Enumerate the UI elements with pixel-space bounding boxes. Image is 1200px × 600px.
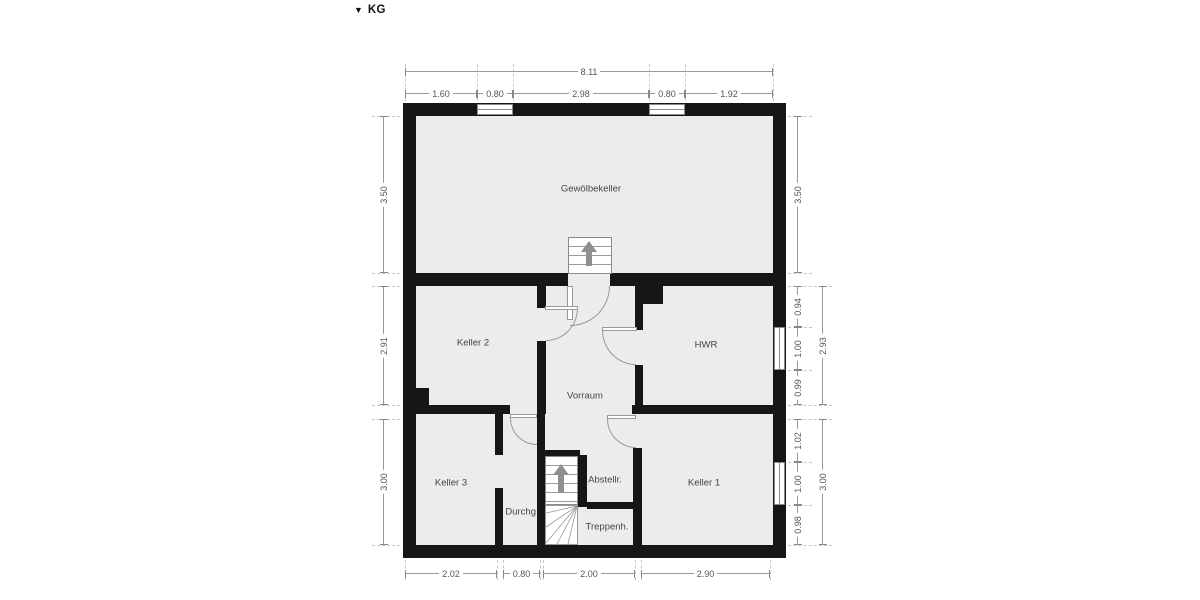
room-label-treppenhaus: Treppenh. [586, 522, 629, 533]
extension-line [788, 405, 832, 406]
door-leaf-keller1 [607, 415, 636, 419]
extension-line [372, 273, 400, 274]
dim-bottom-seg-1: 2.02 [405, 569, 497, 578]
chimney-block [640, 286, 663, 304]
stairs-up-arrow-stem [558, 475, 564, 493]
wall-durchgang-stair [537, 414, 545, 545]
dim-right-bot-1: 1.02 [793, 419, 802, 462]
stairs-winder [545, 505, 578, 545]
wall-keller3-durchgang-lower [495, 488, 503, 545]
extension-line [770, 560, 771, 580]
wall-pillar-left [403, 388, 429, 405]
room-label-hwr: HWR [695, 340, 718, 351]
wall-stair-abstellraum [578, 455, 587, 507]
wall-mid-south-left [403, 405, 510, 414]
floorplan-canvas: ▼ KG [0, 0, 1200, 600]
dim-top-seg-4: 0.80 [649, 89, 685, 98]
room-label-durchgang: Durchg. [505, 507, 538, 518]
dim-right-bot-2: 1.00 [793, 462, 802, 505]
extension-line [788, 273, 812, 274]
dim-top-seg-1: 1.60 [405, 89, 477, 98]
room-label-vorraum: Vorraum [567, 391, 603, 402]
wall-bottom [403, 545, 786, 558]
dim-top-seg-5: 1.92 [685, 89, 773, 98]
wall-left [403, 103, 416, 558]
wall-keller3-durchgang-upper [495, 414, 503, 455]
extension-line [635, 560, 636, 580]
wall-keller2-vorraum-lower [537, 341, 546, 405]
dim-top-seg-2: 0.80 [477, 89, 513, 98]
window-top-left [477, 104, 513, 115]
extension-line [372, 545, 400, 546]
window-hwr [774, 327, 785, 370]
floor-label: KG [368, 4, 386, 16]
stairs-up-arrow-stem [586, 252, 592, 266]
dim-right-top: 3.50 [793, 116, 802, 273]
dim-right-bot-total: 3.00 [818, 419, 827, 545]
wall-keller2-vorraum-upper [537, 286, 546, 308]
extension-line [788, 545, 832, 546]
dim-right-mid-1: 0.94 [793, 286, 802, 327]
wall-gewoelbekeller-south-left [403, 273, 568, 286]
floor-selector[interactable]: ▼ KG [354, 4, 386, 16]
dim-top-seg-3: 2.98 [513, 89, 649, 98]
dim-bottom-seg-4: 2.90 [641, 569, 770, 578]
wall-top [403, 103, 786, 116]
dim-right-mid-2: 1.00 [793, 327, 802, 370]
window-top-right [649, 104, 685, 115]
dim-right-bot-3: 0.98 [793, 505, 802, 545]
extension-line [773, 64, 774, 101]
door-leaf-keller2 [545, 306, 578, 310]
room-label-keller1: Keller 1 [688, 478, 720, 489]
wall-vorraum-hwr-lower [635, 365, 643, 405]
floor-slab [403, 103, 786, 558]
room-label-keller3: Keller 3 [435, 478, 467, 489]
room-label-abstellraum: Abstellr. [588, 475, 622, 486]
wall-mid-south-stub [537, 405, 546, 414]
dim-right-mid-total: 2.93 [818, 286, 827, 405]
wall-mid-south-right [632, 405, 786, 414]
wall-gewoelbekeller-south-right [610, 273, 786, 286]
wall-abstellraum-south [587, 502, 642, 509]
door-leaf-durchgang [510, 414, 537, 418]
door-leaf-hwr [602, 327, 637, 331]
dim-top-total: 8.11 [405, 67, 773, 76]
floor-dropdown-icon: ▼ [354, 4, 363, 16]
extension-line [540, 560, 541, 580]
dim-bottom-seg-3: 2.00 [543, 569, 635, 578]
dim-left-seg-2: 2.91 [379, 286, 388, 405]
window-keller1 [774, 462, 785, 505]
wall-keller1-west [633, 448, 642, 545]
extension-line [497, 560, 498, 580]
dim-bottom-seg-2: 0.80 [503, 569, 540, 578]
dim-right-mid-3: 0.99 [793, 370, 802, 405]
dim-left-seg-3: 3.00 [379, 419, 388, 545]
stairs-up-arrow-icon [581, 241, 597, 252]
stairs-up-arrow-icon [553, 464, 569, 475]
dim-left-seg-1: 3.50 [379, 116, 388, 273]
room-label-gewoelbekeller: Gewölbekeller [561, 184, 621, 195]
extension-line [372, 405, 400, 406]
room-label-keller2: Keller 2 [457, 338, 489, 349]
